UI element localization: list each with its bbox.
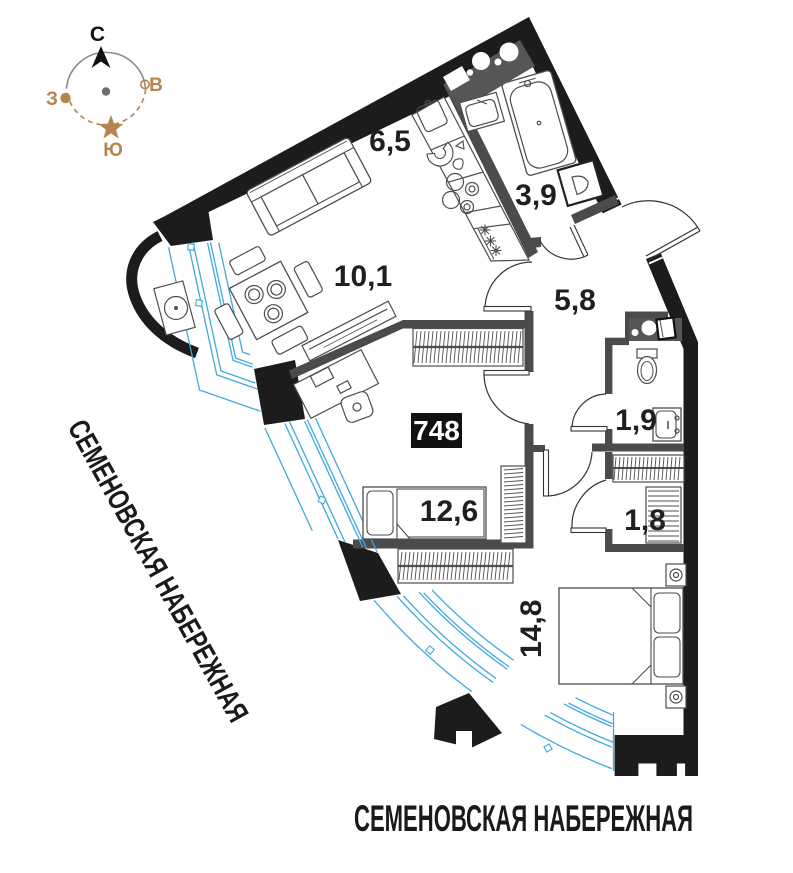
svg-text:748: 748 xyxy=(413,415,460,446)
svg-text:12,6: 12,6 xyxy=(420,495,478,528)
svg-text:СЕМЕНОВСКАЯ НАБЕРЕЖНАЯ: СЕМЕНОВСКАЯ НАБЕРЕЖНАЯ xyxy=(354,797,693,839)
svg-text:3,9: 3,9 xyxy=(515,179,557,212)
svg-text:5,8: 5,8 xyxy=(554,284,596,317)
svg-text:10,1: 10,1 xyxy=(334,260,392,293)
svg-text:1,8: 1,8 xyxy=(624,504,666,537)
svg-text:Ю: Ю xyxy=(103,140,123,161)
svg-text:З: З xyxy=(46,89,58,110)
svg-text:6,5: 6,5 xyxy=(369,125,411,158)
svg-text:В: В xyxy=(149,75,163,96)
svg-text:С: С xyxy=(90,23,105,46)
svg-text:1,9: 1,9 xyxy=(615,404,657,437)
svg-text:14,8: 14,8 xyxy=(515,600,548,658)
